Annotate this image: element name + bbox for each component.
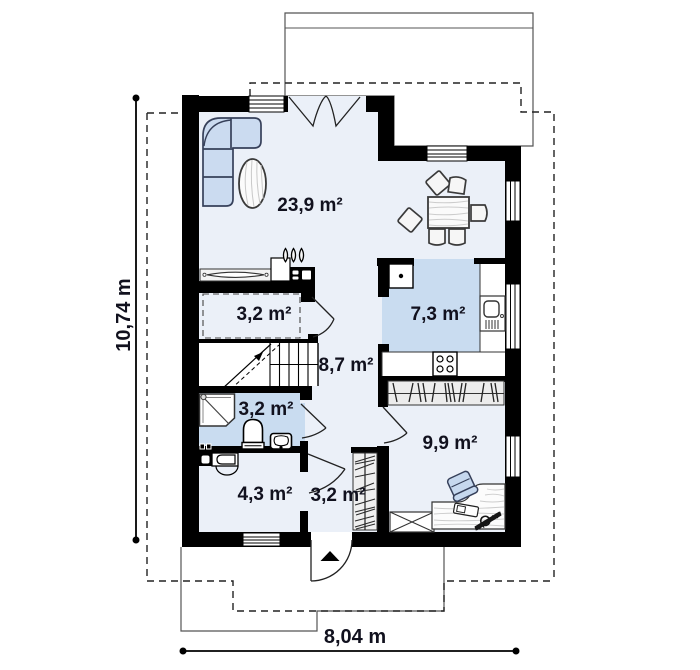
svg-text:3,2 m²: 3,2 m²	[311, 485, 366, 506]
svg-text:3,2 m²: 3,2 m²	[239, 399, 294, 420]
svg-text:4,3 m²: 4,3 m²	[238, 484, 293, 505]
svg-text:9,9 m²: 9,9 m²	[423, 433, 478, 454]
svg-text:23,9 m²: 23,9 m²	[277, 195, 342, 216]
svg-text:8,7 m²: 8,7 m²	[319, 355, 374, 376]
svg-text:10,74 m: 10,74 m	[113, 278, 135, 351]
svg-text:8,04 m: 8,04 m	[324, 626, 386, 648]
svg-text:3,2 m²: 3,2 m²	[237, 304, 292, 325]
svg-text:7,3 m²: 7,3 m²	[411, 304, 466, 325]
